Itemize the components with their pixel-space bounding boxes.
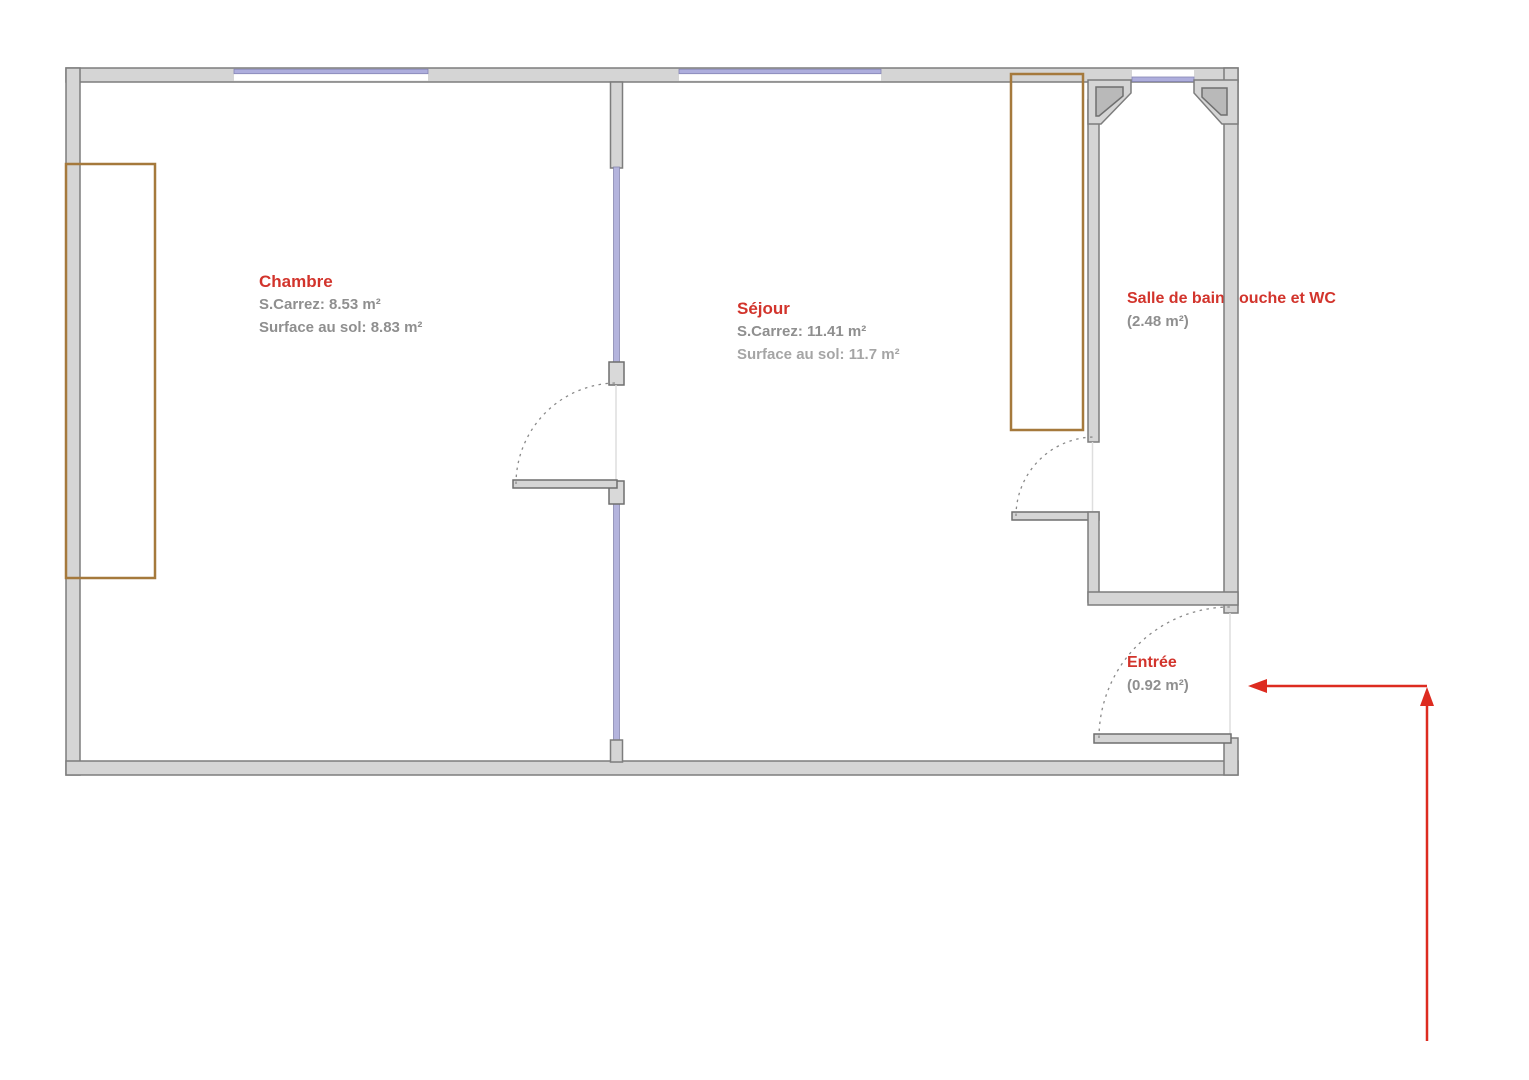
window-sejour-glass bbox=[679, 69, 881, 74]
window-chambre-glass bbox=[234, 69, 428, 74]
wall-left bbox=[66, 68, 80, 775]
wardrobe-sejour bbox=[1011, 74, 1083, 430]
floor-plan-canvas: Chambre S.Carrez: 8.53 m² Surface au sol… bbox=[0, 0, 1529, 1080]
chambre-door-leaf bbox=[513, 480, 617, 488]
bathroom-door-swing-arc bbox=[1016, 437, 1095, 516]
bathroom-wall-bottom bbox=[1088, 592, 1238, 605]
entrance-arrow-left-head bbox=[1248, 679, 1267, 693]
wall-right-upper bbox=[1224, 68, 1238, 613]
exterior-walls bbox=[66, 68, 1238, 775]
wardrobes bbox=[66, 74, 1083, 578]
bathroom-walls bbox=[1012, 80, 1238, 605]
bathroom-wall-left-lower bbox=[1088, 512, 1099, 602]
partition-top-stub bbox=[611, 82, 623, 168]
chambre-door-swing-arc bbox=[516, 383, 617, 484]
window-bathroom-glass bbox=[1132, 77, 1194, 82]
partition-glass-lower bbox=[614, 503, 620, 741]
partition-glass-upper bbox=[614, 167, 620, 365]
floor-plan-drawing bbox=[0, 0, 1529, 1080]
entrance-door-swing-arc bbox=[1099, 607, 1230, 738]
entrance-arrow-up-head bbox=[1420, 687, 1434, 706]
partition-bottom-stub bbox=[611, 740, 623, 762]
bathroom-wall-left-upper bbox=[1088, 100, 1099, 442]
chambre-door-jamb-top bbox=[609, 362, 624, 385]
partition-chambre-sejour bbox=[513, 82, 624, 762]
bathroom-door-leaf bbox=[1012, 512, 1099, 520]
entrance-arrow-icon bbox=[1248, 679, 1434, 1041]
wall-bottom bbox=[66, 761, 1238, 775]
entrance-door-leaf bbox=[1094, 734, 1231, 743]
entrance-door bbox=[1094, 607, 1231, 743]
